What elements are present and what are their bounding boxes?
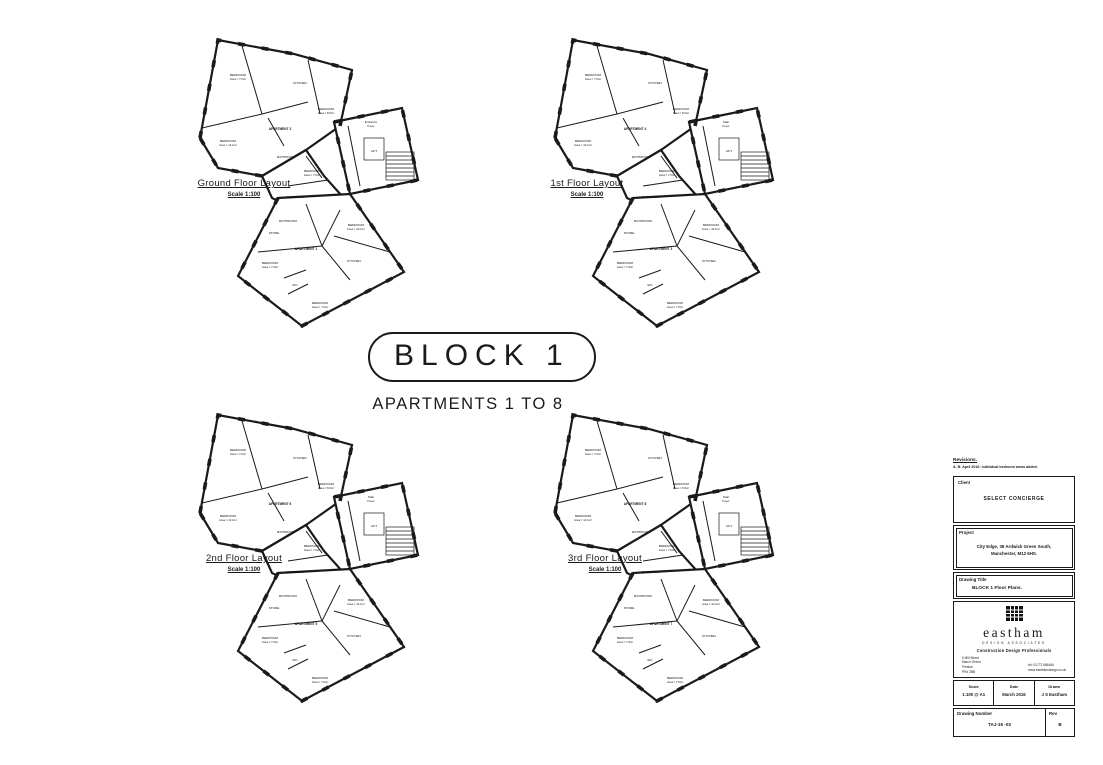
svg-text:BEDROOMArea = 7.6m²: BEDROOMArea = 7.6m² xyxy=(659,169,676,177)
svg-text:APARTMENT 3: APARTMENT 3 xyxy=(650,247,673,251)
rev-cell: Rev B xyxy=(1046,709,1074,736)
svg-text:KITCHEN: KITCHEN xyxy=(347,634,361,638)
svg-text:APARTMENT 1: APARTMENT 1 xyxy=(295,247,318,251)
svg-text:APARTMENT 2: APARTMENT 2 xyxy=(269,127,292,131)
svg-text:BEDROOMArea = 7.6m²: BEDROOMArea = 7.6m² xyxy=(304,169,321,177)
svg-text:BEDROOMArea = 7.6m²: BEDROOMArea = 7.6m² xyxy=(304,544,321,552)
svg-text:BEDROOMArea = 7.6m²: BEDROOMArea = 7.6m² xyxy=(230,73,247,81)
svg-text:KITCHEN: KITCHEN xyxy=(293,81,307,85)
plan-label: 3rd Floor Layout Scale 1:100 xyxy=(549,553,661,573)
svg-text:BEDROOMArea = 7.6m²: BEDROOMArea = 7.6m² xyxy=(312,676,329,684)
drawing-number-row: Drawing Number TAJ-16 -03 Rev B xyxy=(953,708,1075,737)
plan-scale-note: Scale 1:100 xyxy=(188,192,300,198)
svg-text:BEDROOMArea = 7.9m²: BEDROOMArea = 7.9m² xyxy=(617,261,634,269)
block-subtitle: APARTMENTS 1 TO 8 xyxy=(368,395,568,414)
company-grid-logo-icon xyxy=(1006,606,1023,621)
drawing-title-box: Drawing Title BLOCK 1 Floor Plans. xyxy=(953,572,1075,599)
svg-text:BEDROOMArea = 7.6m²: BEDROOMArea = 7.6m² xyxy=(585,448,602,456)
project-address-line2: Manchester, M12 6HS. xyxy=(954,550,1074,557)
svg-text:StairFoyer: StairFoyer xyxy=(367,495,374,503)
svg-text:WC: WC xyxy=(647,283,653,287)
svg-text:BEDROOMArea = 12.1m²: BEDROOMArea = 12.1m² xyxy=(574,514,592,522)
svg-text:BEDROOMArea = 12.1m²: BEDROOMArea = 12.1m² xyxy=(219,139,237,147)
block-banner: BLOCK 1 APARTMENTS 1 TO 8 xyxy=(368,332,568,414)
floor-plan-third: BEDROOMArea = 7.6m²KITCHENBEDROOMArea = … xyxy=(543,401,779,707)
client-label: Client xyxy=(958,480,970,485)
title-block: Revisions. A, B: April 2016: individual … xyxy=(953,458,1075,737)
drawing-title-label: Drawing Title xyxy=(959,577,987,582)
svg-text:KITCHEN: KITCHEN xyxy=(702,634,716,638)
svg-text:WC: WC xyxy=(292,283,298,287)
drawing-number-cell: Drawing Number TAJ-16 -03 xyxy=(954,709,1046,736)
svg-text:BATHROOM: BATHROOM xyxy=(632,155,650,159)
svg-text:STORE: STORE xyxy=(624,231,635,235)
svg-text:KITCHEN: KITCHEN xyxy=(702,259,716,263)
plan-title: 3rd Floor Layout xyxy=(549,553,661,564)
block-title-pill: BLOCK 1 xyxy=(368,332,596,382)
svg-text:APARTMENT 7: APARTMENT 7 xyxy=(650,622,673,626)
svg-text:BEDROOMArea = 10.1m²: BEDROOMArea = 10.1m² xyxy=(702,223,720,231)
date-label: Date xyxy=(994,684,1033,689)
svg-text:KITCHEN: KITCHEN xyxy=(648,456,662,460)
svg-text:BATHROOM: BATHROOM xyxy=(279,594,297,598)
company-name: eastham xyxy=(954,626,1074,640)
plan-scale-note: Scale 1:100 xyxy=(549,567,661,573)
svg-text:LIFT: LIFT xyxy=(726,149,732,153)
client-box: Client SELECT CONCIERGE xyxy=(953,476,1075,523)
company-contact: tel: 01772 686466www.easthamdesign.co.uk xyxy=(1028,663,1066,675)
drawing-sheet: BEDROOMArea = 7.6m²KITCHENBEDROOMArea = … xyxy=(0,0,1103,765)
svg-text:WC: WC xyxy=(647,658,653,662)
client-name: SELECT CONCIERGE xyxy=(954,477,1074,502)
svg-text:KITCHEN: KITCHEN xyxy=(347,259,361,263)
plan-scale-note: Scale 1:100 xyxy=(531,192,643,198)
svg-text:StairFoyer: StairFoyer xyxy=(722,495,729,503)
revisions-note: A, B: April 2016: individual bedroom are… xyxy=(953,465,1075,469)
revisions-section: Revisions. A, B: April 2016: individual … xyxy=(953,458,1075,469)
svg-text:BEDROOMArea = 10.1m²: BEDROOMArea = 10.1m² xyxy=(347,598,365,606)
drawing-title: BLOCK 1 Floor Plans. xyxy=(954,573,1074,591)
project-label: Project xyxy=(959,530,974,535)
svg-text:BEDROOMArea = 10.1m²: BEDROOMArea = 10.1m² xyxy=(702,598,720,606)
company-address: 6 Mill StreetManor GreenPrestonPR4 2BB xyxy=(962,656,981,676)
drawn-value: J S Eastham xyxy=(1035,692,1074,697)
svg-text:BEDROOMArea = 7.6m²: BEDROOMArea = 7.6m² xyxy=(667,676,684,684)
svg-text:BEDROOMArea = 12.1m²: BEDROOMArea = 12.1m² xyxy=(219,514,237,522)
svg-text:APARTMENT 8: APARTMENT 8 xyxy=(624,502,647,506)
scale-label: Scale xyxy=(954,684,993,689)
plan-label: Ground Floor Layout Scale 1:100 xyxy=(188,178,300,198)
svg-text:BEDROOMArea = 7.9m²: BEDROOMArea = 7.9m² xyxy=(262,636,279,644)
svg-text:BEDROOMArea = 8.6m²: BEDROOMArea = 8.6m² xyxy=(318,107,335,115)
drawing-number-label: Drawing Number xyxy=(957,711,992,716)
svg-text:KITCHEN: KITCHEN xyxy=(648,81,662,85)
date-value: March 2016 xyxy=(994,692,1033,697)
svg-text:StairFoyer: StairFoyer xyxy=(722,120,729,128)
svg-text:BATHROOM: BATHROOM xyxy=(634,594,652,598)
svg-text:LIFT: LIFT xyxy=(371,149,377,153)
svg-text:BEDROOMArea = 8.6m²: BEDROOMArea = 8.6m² xyxy=(673,107,690,115)
floor-plan-ground: BEDROOMArea = 7.6m²KITCHENBEDROOMArea = … xyxy=(188,26,424,332)
svg-text:WC: WC xyxy=(292,658,298,662)
rev-label: Rev xyxy=(1049,711,1057,716)
svg-text:BEDROOMArea = 7.6m²: BEDROOMArea = 7.6m² xyxy=(667,301,684,309)
drawn-label: Drawn xyxy=(1035,684,1074,689)
plan-scale-note: Scale 1:100 xyxy=(188,567,300,573)
svg-text:APARTMENT 6: APARTMENT 6 xyxy=(269,502,292,506)
svg-text:BEDROOMArea = 10.1m²: BEDROOMArea = 10.1m² xyxy=(347,223,365,231)
svg-text:LIFT: LIFT xyxy=(726,524,732,528)
svg-text:STORE: STORE xyxy=(624,606,635,610)
drawn-cell: Drawn J S Eastham xyxy=(1035,681,1074,705)
svg-text:LIFT: LIFT xyxy=(371,524,377,528)
svg-text:BEDROOMArea = 7.6m²: BEDROOMArea = 7.6m² xyxy=(585,73,602,81)
scale-date-drawn-row: Scale 1:100 @ A1 Date March 2016 Drawn J… xyxy=(953,680,1075,706)
svg-text:BATHROOM: BATHROOM xyxy=(634,219,652,223)
plan-title: Ground Floor Layout xyxy=(188,178,300,189)
date-cell: Date March 2016 xyxy=(994,681,1034,705)
svg-text:BEDROOMArea = 7.6m²: BEDROOMArea = 7.6m² xyxy=(659,544,676,552)
plan-title: 2nd Floor Layout xyxy=(188,553,300,564)
scale-value: 1:100 @ A1 xyxy=(954,692,993,697)
plan-label: 1st Floor Layout Scale 1:100 xyxy=(531,178,643,198)
svg-text:BATHROOM: BATHROOM xyxy=(277,155,295,159)
svg-text:STORE: STORE xyxy=(269,606,280,610)
svg-text:BEDROOMArea = 7.6m²: BEDROOMArea = 7.6m² xyxy=(230,448,247,456)
svg-text:BEDROOMArea = 12.1m²: BEDROOMArea = 12.1m² xyxy=(574,139,592,147)
svg-text:BEDROOMArea = 8.6m²: BEDROOMArea = 8.6m² xyxy=(673,482,690,490)
project-box: Project City Edge, 38 Ardwick Green Sout… xyxy=(953,525,1075,570)
svg-text:BEDROOMArea = 7.9m²: BEDROOMArea = 7.9m² xyxy=(617,636,634,644)
revisions-heading: Revisions. xyxy=(953,458,1075,463)
company-box: eastham DESIGN ASSOCIATES Construction D… xyxy=(953,601,1075,678)
company-tagline: DESIGN ASSOCIATES xyxy=(954,641,1074,645)
svg-text:APARTMENT 5: APARTMENT 5 xyxy=(295,622,318,626)
floor-plan-second: BEDROOMArea = 7.6m²KITCHENBEDROOMArea = … xyxy=(188,401,424,707)
svg-text:APARTMENT 4: APARTMENT 4 xyxy=(624,127,647,131)
svg-text:BATHROOM: BATHROOM xyxy=(642,195,660,199)
svg-text:KITCHEN: KITCHEN xyxy=(293,456,307,460)
svg-text:STORE: STORE xyxy=(269,231,280,235)
svg-text:BEDROOMArea = 8.6m²: BEDROOMArea = 8.6m² xyxy=(318,482,335,490)
plan-title: 1st Floor Layout xyxy=(531,178,643,189)
svg-text:BEDROOMArea = 7.6m²: BEDROOMArea = 7.6m² xyxy=(312,301,329,309)
block-title: BLOCK 1 xyxy=(394,339,570,372)
svg-text:BEDROOMArea = 7.9m²: BEDROOMArea = 7.9m² xyxy=(262,261,279,269)
svg-text:BATHROOM: BATHROOM xyxy=(279,219,297,223)
project-address-line1: City Edge, 38 Ardwick Green South, xyxy=(954,543,1074,550)
svg-text:BATHROOM: BATHROOM xyxy=(277,530,295,534)
scale-cell: Scale 1:100 @ A1 xyxy=(954,681,994,705)
floor-plan-first: BEDROOMArea = 7.6m²KITCHENBEDROOMArea = … xyxy=(543,26,779,332)
svg-text:BATHROOM: BATHROOM xyxy=(632,530,650,534)
plan-label: 2nd Floor Layout Scale 1:100 xyxy=(188,553,300,573)
